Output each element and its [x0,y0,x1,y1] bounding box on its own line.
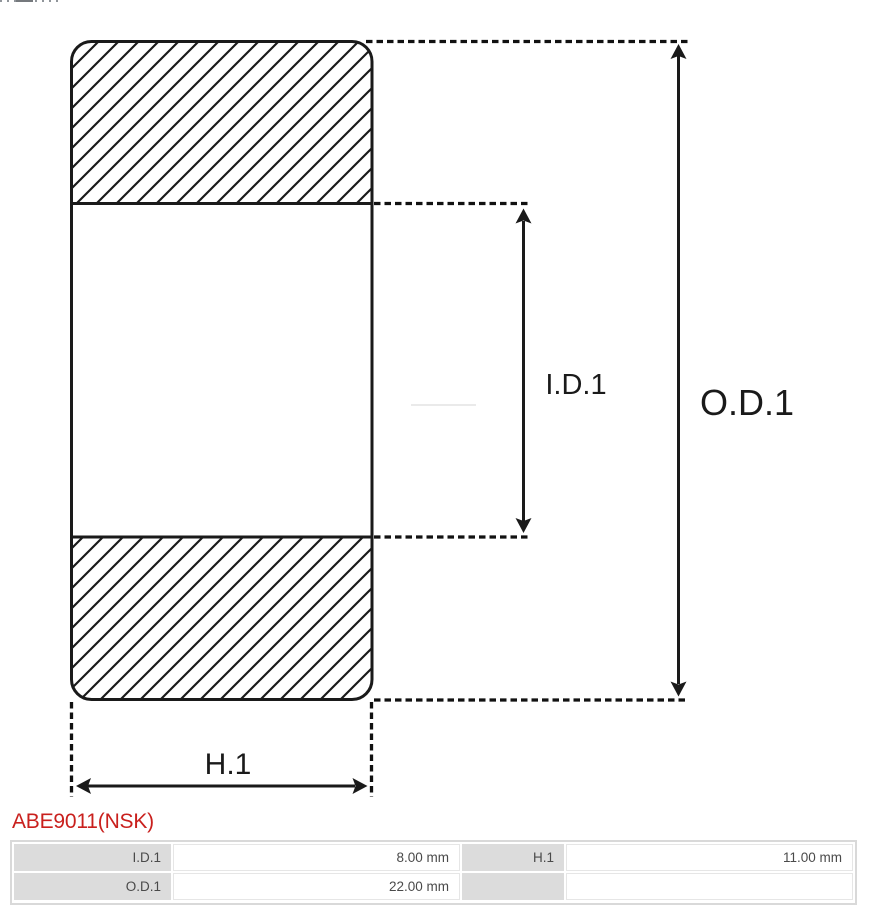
svg-text:H.1: H.1 [205,748,252,781]
svg-text:O.D.1: O.D.1 [700,382,794,423]
svg-text:I.D.1: I.D.1 [545,369,606,401]
